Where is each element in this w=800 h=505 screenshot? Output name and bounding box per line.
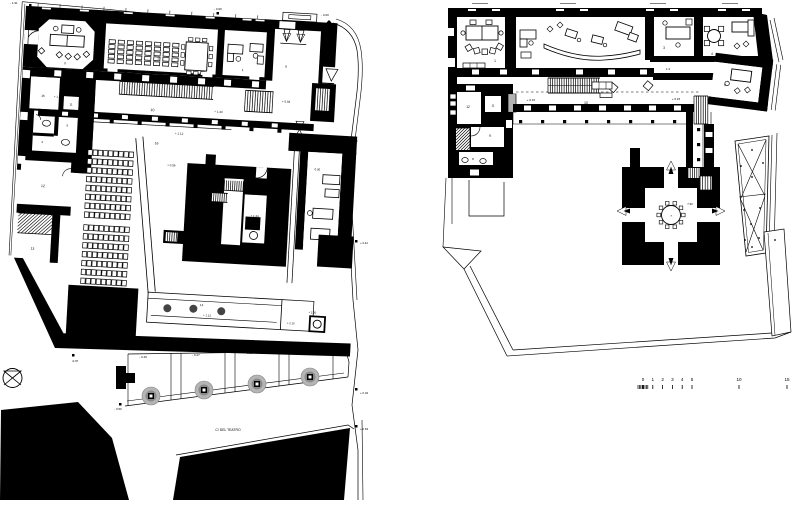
svg-text:5: 5 bbox=[691, 377, 694, 382]
svg-text:+ 1.12: + 1.12 bbox=[175, 131, 184, 135]
svg-text:+ 0.32: + 0.32 bbox=[360, 391, 369, 395]
svg-text:0.10: 0.10 bbox=[352, 139, 358, 143]
svg-text:+ 0.63: + 0.63 bbox=[360, 427, 369, 431]
svg-text:0: 0 bbox=[642, 377, 645, 382]
svg-text:- 0.56: - 0.56 bbox=[114, 407, 122, 411]
svg-text:3: 3 bbox=[671, 377, 674, 382]
svg-text:+ 2.10: + 2.10 bbox=[287, 321, 296, 325]
svg-text:- 0.49: - 0.49 bbox=[139, 355, 147, 359]
svg-text:-0.97: -0.97 bbox=[72, 359, 79, 363]
svg-text:- 0.27: - 0.27 bbox=[192, 353, 200, 357]
svg-text:0.36: 0.36 bbox=[314, 167, 320, 171]
svg-text:7.60: 7.60 bbox=[687, 202, 693, 206]
svg-text:4: 4 bbox=[681, 377, 684, 382]
svg-text:9: 9 bbox=[489, 134, 491, 138]
svg-text:2: 2 bbox=[661, 377, 664, 382]
svg-text:10: 10 bbox=[736, 377, 742, 382]
svg-text:11: 11 bbox=[491, 104, 494, 108]
svg-text:+ 2.00: + 2.00 bbox=[308, 310, 317, 314]
svg-text:- 0.05: - 0.05 bbox=[245, 351, 253, 355]
svg-text:+ 0.42: + 0.42 bbox=[360, 241, 368, 245]
svg-text:- 0.00: - 0.00 bbox=[321, 13, 329, 17]
svg-text:+ 0.17: + 0.17 bbox=[307, 350, 316, 354]
svg-text:+ 1.34: + 1.34 bbox=[54, 95, 63, 99]
svg-text:12: 12 bbox=[41, 184, 45, 188]
svg-text:1: 1 bbox=[494, 59, 496, 63]
svg-text:C/ DEL TEATRO: C/ DEL TEATRO bbox=[215, 428, 241, 432]
svg-text:1: 1 bbox=[652, 377, 655, 382]
svg-text:16: 16 bbox=[155, 141, 159, 145]
svg-text:+ 0.95: + 0.95 bbox=[167, 163, 176, 167]
svg-text:14: 14 bbox=[200, 303, 204, 307]
svg-text:15: 15 bbox=[784, 377, 790, 382]
svg-text:+ 6.15: + 6.15 bbox=[527, 98, 536, 102]
svg-text:+ 1.34: + 1.34 bbox=[214, 110, 223, 114]
svg-text:+ 0.94: + 0.94 bbox=[282, 99, 291, 103]
svg-text:1.3: 1.3 bbox=[666, 67, 671, 71]
svg-text:11: 11 bbox=[69, 102, 73, 106]
svg-text:3: 3 bbox=[663, 46, 665, 50]
svg-text:- 0.06: - 0.06 bbox=[214, 7, 222, 11]
svg-text:10: 10 bbox=[688, 137, 692, 141]
svg-text:+ 6.15: + 6.15 bbox=[672, 97, 681, 101]
svg-text:+ 1.12: + 1.12 bbox=[203, 313, 212, 317]
svg-text:- 1.91: - 1.91 bbox=[10, 1, 18, 5]
svg-text:10: 10 bbox=[150, 108, 154, 112]
svg-text:12: 12 bbox=[466, 105, 470, 109]
svg-text:13: 13 bbox=[30, 247, 34, 251]
svg-text:4: 4 bbox=[711, 52, 713, 56]
svg-text:15: 15 bbox=[41, 94, 45, 98]
